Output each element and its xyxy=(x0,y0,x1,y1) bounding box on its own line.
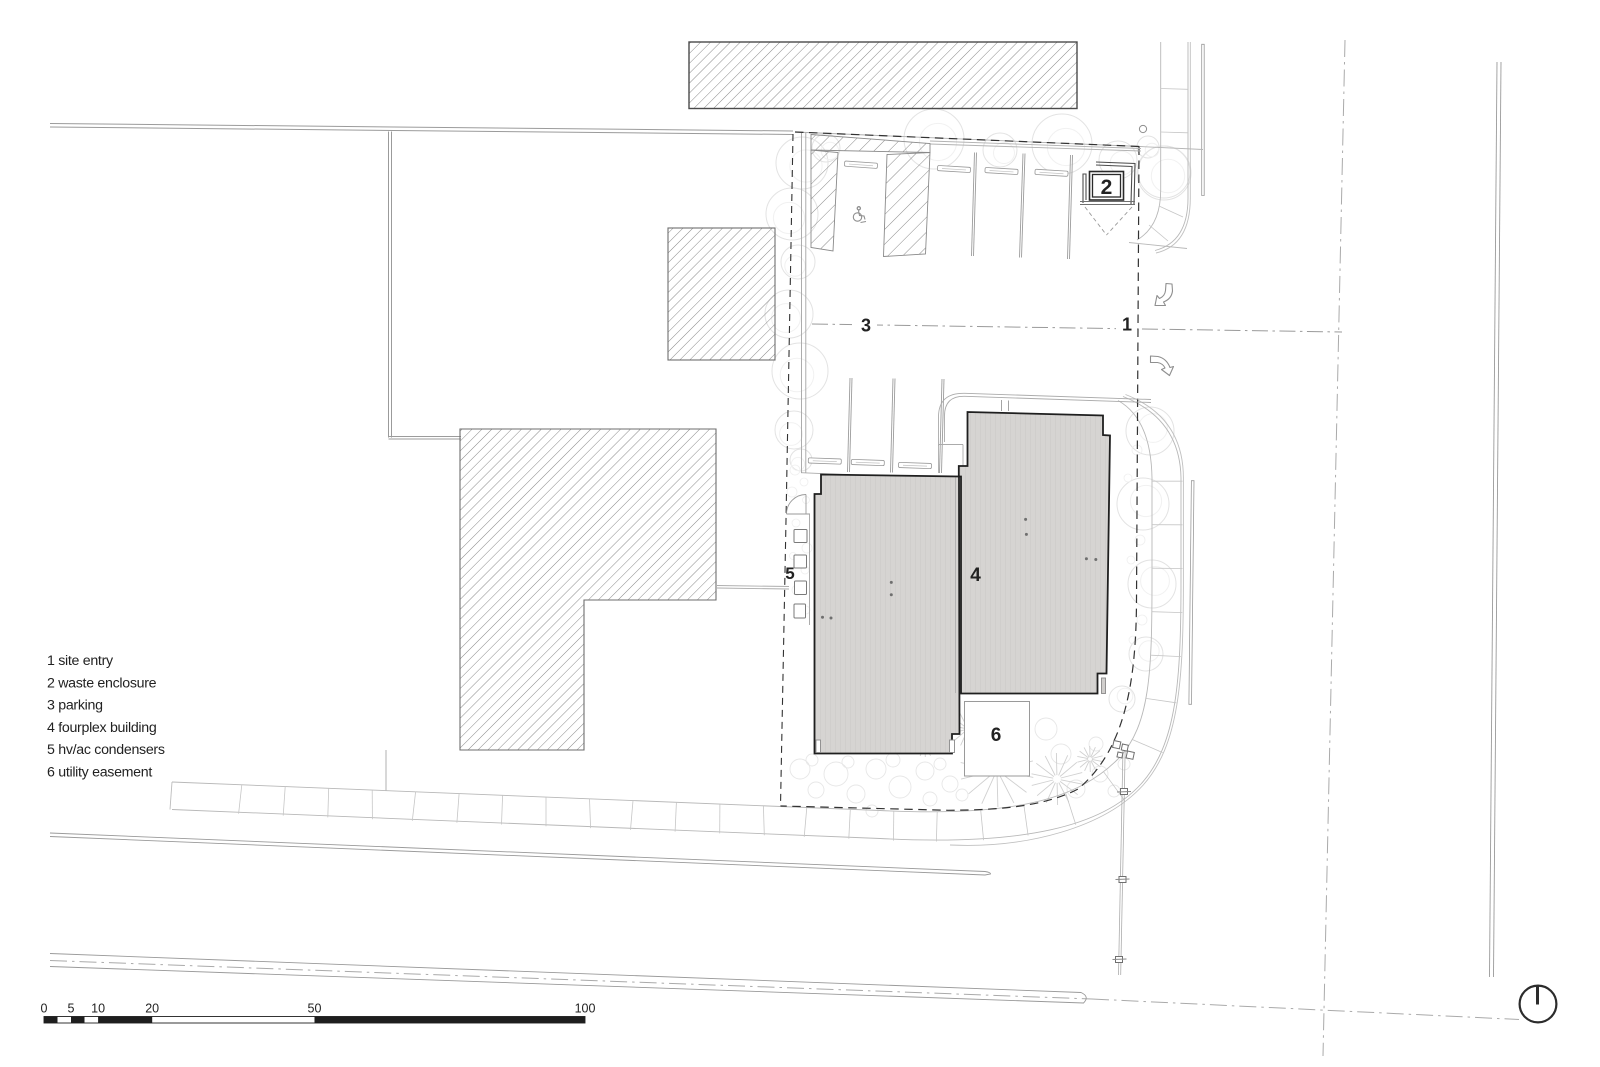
svg-text:3 parking: 3 parking xyxy=(47,698,103,714)
svg-text:0: 0 xyxy=(41,1002,48,1016)
svg-text:3: 3 xyxy=(861,316,871,336)
svg-text:20: 20 xyxy=(145,1002,159,1016)
svg-text:4: 4 xyxy=(970,565,981,586)
svg-text:2 waste enclosure: 2 waste enclosure xyxy=(47,675,157,691)
svg-text:10: 10 xyxy=(91,1002,105,1016)
svg-text:1 site entry: 1 site entry xyxy=(47,653,114,669)
svg-text:4 fourplex building: 4 fourplex building xyxy=(47,720,156,736)
svg-text:6 utility easement: 6 utility easement xyxy=(47,765,152,781)
svg-text:2: 2 xyxy=(1101,176,1113,199)
svg-text:5 hv/ac condensers: 5 hv/ac condensers xyxy=(47,742,165,758)
svg-text:100: 100 xyxy=(575,1002,596,1016)
svg-text:6: 6 xyxy=(991,725,1002,746)
svg-text:5: 5 xyxy=(785,564,794,583)
svg-text:5: 5 xyxy=(68,1002,75,1016)
svg-text:50: 50 xyxy=(308,1002,322,1016)
svg-text:1: 1 xyxy=(1122,315,1132,335)
